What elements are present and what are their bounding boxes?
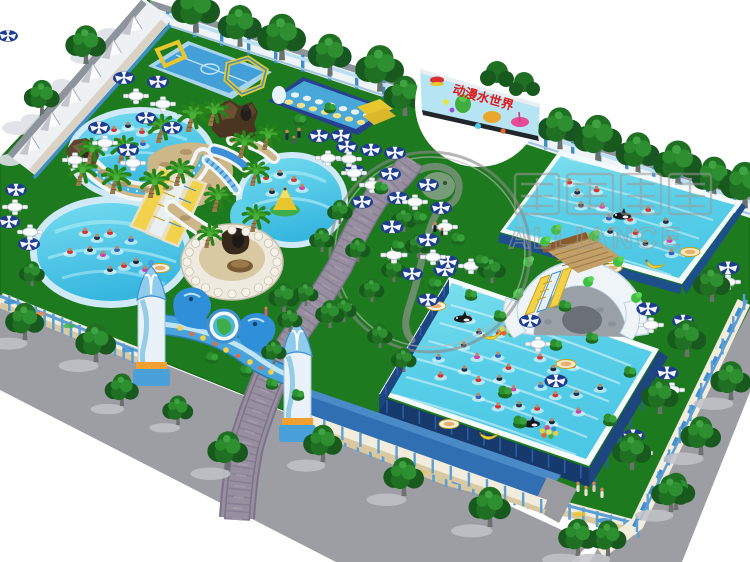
svg-text:ALLIANCE: ALLIANCE xyxy=(508,222,684,255)
